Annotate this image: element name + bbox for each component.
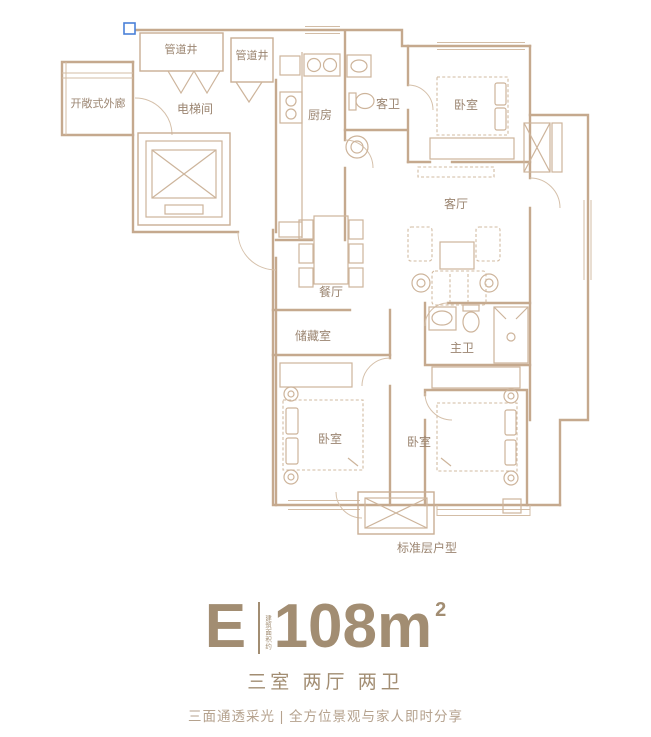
guest-bath-label: 客卫 — [376, 96, 400, 111]
storage-area: 储藏室 — [295, 328, 331, 343]
bedroom-left-label: 卧室 — [318, 431, 342, 446]
floorplan-caption: 标准层户型 — [397, 540, 457, 555]
guest-bath-area: 客卫 — [346, 55, 400, 158]
bedroom-top-label: 卧室 — [454, 97, 478, 112]
area-prefix: 建筑面积约 — [263, 615, 270, 650]
layout-summary: 三室 两厅 两卫 — [0, 667, 651, 694]
pipe-shaft-1: 管道井 — [140, 33, 223, 93]
dining-room-area: 餐厅 — [299, 216, 363, 299]
tagline: 三面通透采光 | 全方位景观与家人即时分享 — [0, 705, 651, 725]
living-room-label: 客厅 — [444, 196, 468, 211]
living-room-area: 客厅 — [408, 196, 500, 305]
kitchen-area: 厨房 — [279, 52, 340, 238]
pipe-shaft-2-label: 管道井 — [236, 48, 269, 62]
master-bath-label: 主卫 — [450, 341, 474, 355]
kitchen-label: 厨房 — [308, 107, 332, 122]
bottom-entry: 标准层户型 — [358, 492, 521, 555]
unit-area-line: E 建筑面积约 108 m 2 — [0, 598, 651, 655]
pipe-shaft-2: 管道井 — [231, 38, 273, 102]
selection-handle[interactable] — [124, 23, 135, 34]
elevator-hall-label: 电梯间 — [177, 102, 213, 116]
storage-label: 储藏室 — [295, 328, 331, 343]
master-bath-area: 主卫 — [429, 305, 528, 363]
bedroom-right-label: 卧室 — [407, 434, 431, 449]
dining-room-label: 餐厅 — [319, 284, 343, 299]
area-exponent: 2 — [435, 600, 446, 620]
pipe-shaft-1-label: 管道井 — [165, 42, 198, 56]
open-corridor: 开敞式外廊 — [71, 96, 126, 110]
area-number: 108 — [274, 598, 377, 655]
unit-letter: E — [205, 598, 246, 655]
open-corridor-label: 开敞式外廊 — [71, 96, 126, 110]
area-unit: m — [377, 598, 432, 655]
divider-bar — [258, 602, 260, 654]
floorplan-drawing: 管道井 管道井 开敞式外廊 电梯间 — [0, 0, 651, 595]
page-canvas: 管道井 管道井 开敞式外廊 电梯间 — [0, 0, 651, 737]
elevator-hall: 电梯间 — [138, 102, 230, 225]
bedroom-left-area: 卧室 — [280, 363, 363, 484]
unit-info-block: E 建筑面积约 108 m 2 三室 两厅 两卫 三面通透采光 | 全方位景观与… — [0, 598, 651, 725]
